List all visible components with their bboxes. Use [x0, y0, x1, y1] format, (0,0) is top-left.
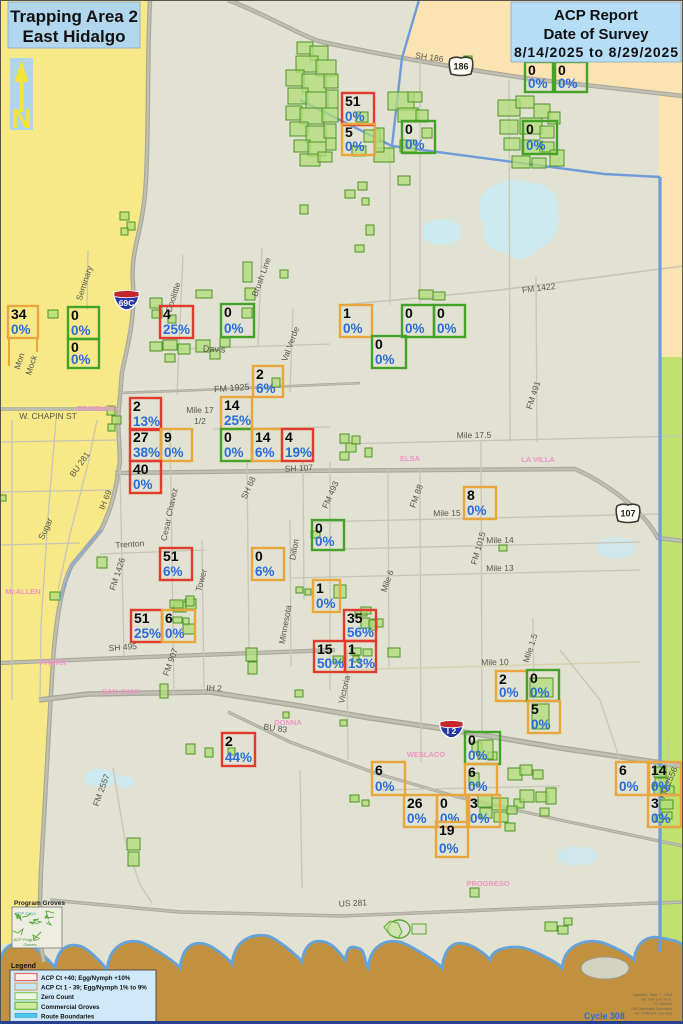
svg-text:0: 0: [224, 304, 232, 320]
svg-text:15: 15: [317, 641, 333, 657]
svg-text:1: 1: [348, 641, 356, 657]
svg-text:6%: 6%: [163, 564, 183, 579]
svg-text:EDINBURG: EDINBURG: [77, 404, 117, 413]
svg-text:6%: 6%: [256, 381, 276, 396]
svg-text:0%: 0%: [439, 841, 459, 856]
svg-text:3: 3: [651, 795, 659, 811]
svg-text:6%: 6%: [255, 564, 275, 579]
svg-text:0%: 0%: [558, 76, 578, 91]
svg-text:0: 0: [375, 336, 383, 352]
svg-text:6: 6: [165, 610, 173, 626]
svg-text:8: 8: [467, 487, 475, 503]
svg-text:0%: 0%: [405, 321, 425, 336]
svg-text:0%: 0%: [499, 685, 519, 700]
svg-text:Mile 13: Mile 13: [486, 563, 514, 573]
svg-text:1: 1: [316, 580, 324, 596]
svg-text:19%: 19%: [285, 445, 312, 460]
svg-text:LA VILLA: LA VILLA: [521, 455, 555, 464]
svg-text:1/2: 1/2: [194, 416, 206, 426]
svg-text:8/14/2025 to 8/29/2025: 8/14/2025 to 8/29/2025: [514, 44, 678, 60]
svg-text:0%: 0%: [343, 321, 363, 336]
svg-text:East Hidalgo: East Hidalgo: [23, 27, 126, 46]
svg-text:0%: 0%: [315, 534, 335, 549]
svg-text:Legend: Legend: [11, 963, 36, 970]
svg-text:0%: 0%: [375, 352, 395, 367]
svg-text:19: 19: [439, 822, 455, 838]
svg-text:0%: 0%: [528, 76, 548, 91]
svg-text:Cycle 308: Cycle 308: [584, 1011, 625, 1021]
svg-text:27: 27: [133, 429, 149, 445]
svg-text:ELSA: ELSA: [400, 454, 421, 463]
svg-text:0%: 0%: [224, 321, 244, 336]
svg-text:2: 2: [256, 366, 264, 382]
svg-text:0%: 0%: [375, 779, 395, 794]
svg-text:0%: 0%: [619, 779, 639, 794]
svg-text:34: 34: [11, 306, 27, 322]
svg-text:0%: 0%: [164, 445, 184, 460]
svg-text:Mile 17.5: Mile 17.5: [457, 430, 492, 441]
svg-text:0%: 0%: [133, 477, 153, 492]
svg-text:ACP Ct +40; Egg/Nymph +10%: ACP Ct +40; Egg/Nymph +10%: [41, 975, 131, 982]
svg-text:0%: 0%: [468, 779, 488, 794]
svg-text:Updated: Sept. 7, 2018: Updated: Sept. 7, 2018: [633, 993, 672, 997]
svg-text:Tel: TXWDAT Lab only: Tel: TXWDAT Lab only: [634, 1011, 672, 1015]
svg-text:0%: 0%: [345, 139, 365, 154]
svg-text:0%: 0%: [407, 811, 427, 826]
svg-text:SAN JUAN: SAN JUAN: [102, 687, 140, 696]
svg-text:Trapping Area 2: Trapping Area 2: [10, 7, 138, 26]
svg-text:0: 0: [71, 307, 79, 323]
svg-text:14: 14: [651, 762, 667, 778]
svg-text:Davis: Davis: [203, 343, 226, 354]
svg-text:107: 107: [620, 509, 635, 519]
svg-text:25%: 25%: [163, 322, 190, 337]
svg-text:14: 14: [255, 429, 271, 445]
svg-text:IH 2: IH 2: [206, 683, 222, 694]
svg-text:0: 0: [224, 429, 232, 445]
svg-text:0%: 0%: [224, 445, 244, 460]
svg-text:Trenton: Trenton: [115, 538, 145, 550]
svg-text:Program Groves: Program Groves: [14, 900, 65, 907]
svg-text:I 2: I 2: [447, 726, 457, 736]
svg-text:Route Boundaries: Route Boundaries: [41, 1013, 95, 1020]
svg-text:0%: 0%: [11, 322, 31, 337]
svg-text:69C: 69C: [119, 298, 135, 308]
svg-text:44%: 44%: [225, 750, 252, 765]
svg-text:6: 6: [619, 762, 627, 778]
svg-text:Mile 10: Mile 10: [481, 657, 509, 667]
svg-text:0: 0: [440, 795, 448, 811]
svg-text:N: N: [11, 103, 31, 134]
svg-text:0%: 0%: [470, 811, 490, 826]
svg-text:PROGRESO: PROGRESO: [466, 879, 510, 888]
svg-text:Date of Survey: Date of Survey: [543, 26, 649, 43]
svg-text:0: 0: [437, 305, 445, 321]
svg-text:WESLACO: WESLACO: [407, 750, 445, 759]
svg-text:0%: 0%: [316, 596, 336, 611]
svg-text:Zero Count: Zero Count: [41, 994, 74, 1001]
svg-text:51: 51: [163, 548, 179, 564]
svg-text:0%: 0%: [437, 321, 457, 336]
svg-text:0: 0: [468, 732, 476, 748]
svg-text:0%: 0%: [405, 137, 425, 152]
svg-text:13%: 13%: [348, 656, 375, 671]
svg-text:0: 0: [530, 670, 538, 686]
svg-text:SH 107: SH 107: [284, 462, 313, 473]
svg-text:0: 0: [405, 121, 413, 137]
svg-text:40: 40: [133, 461, 149, 477]
svg-text:By: GIS and Tech.: By: GIS and Tech.: [641, 998, 672, 1002]
svg-text:TX Weekly: TX Weekly: [654, 1002, 672, 1006]
svg-text:GIS Database Specialist: GIS Database Specialist: [631, 1007, 673, 1011]
svg-text:6: 6: [468, 764, 476, 780]
svg-text:56%: 56%: [347, 625, 374, 640]
svg-text:9: 9: [164, 429, 172, 445]
svg-text:0%: 0%: [71, 352, 91, 367]
svg-text:4: 4: [285, 429, 293, 445]
svg-text:0: 0: [526, 121, 534, 137]
svg-text:W. CHAPIN ST: W. CHAPIN ST: [19, 411, 77, 421]
svg-text:0%: 0%: [345, 109, 365, 124]
svg-text:14: 14: [224, 397, 240, 413]
svg-text:5: 5: [531, 701, 539, 717]
svg-text:25%: 25%: [134, 626, 161, 641]
svg-text:0%: 0%: [467, 503, 487, 518]
svg-text:186: 186: [453, 62, 468, 72]
svg-text:ACP Ct 1 - 39; Egg/Nymph 1% to: ACP Ct 1 - 39; Egg/Nymph 1% to 9%: [41, 985, 147, 992]
svg-text:0%: 0%: [651, 779, 671, 794]
svg-text:US 281: US 281: [338, 897, 367, 908]
svg-text:McALLEN: McALLEN: [5, 587, 40, 596]
svg-text:PHARR: PHARR: [40, 658, 67, 667]
svg-text:51: 51: [345, 93, 361, 109]
svg-text:6%: 6%: [255, 445, 275, 460]
svg-text:Mile 15: Mile 15: [433, 508, 461, 518]
svg-text:Groves: Groves: [24, 942, 37, 947]
svg-text:1: 1: [343, 305, 351, 321]
svg-text:2: 2: [225, 733, 233, 749]
svg-text:0: 0: [405, 305, 413, 321]
svg-text:0%: 0%: [531, 717, 551, 732]
svg-text:13%: 13%: [133, 414, 160, 429]
svg-text:0%: 0%: [526, 138, 546, 153]
svg-text:0%: 0%: [71, 323, 91, 338]
svg-text:0: 0: [255, 548, 263, 564]
svg-text:35: 35: [347, 610, 363, 626]
svg-text:3: 3: [470, 795, 478, 811]
svg-text:25%: 25%: [224, 413, 251, 428]
svg-text:38%: 38%: [133, 445, 160, 460]
svg-text:50%: 50%: [317, 656, 344, 671]
svg-text:51: 51: [134, 610, 150, 626]
svg-text:5: 5: [345, 124, 353, 140]
svg-text:2: 2: [133, 398, 141, 414]
svg-text:0%: 0%: [530, 685, 550, 700]
svg-text:Mile 14: Mile 14: [486, 535, 514, 545]
svg-text:ACP Report: ACP Report: [554, 7, 638, 24]
svg-text:0%: 0%: [651, 811, 671, 826]
svg-text:0%: 0%: [468, 748, 488, 763]
svg-text:26: 26: [407, 795, 423, 811]
svg-text:Commercial Groves: Commercial Groves: [41, 1004, 100, 1011]
svg-text:Mile 17: Mile 17: [186, 405, 214, 415]
svg-text:4: 4: [163, 306, 171, 322]
svg-text:0%: 0%: [165, 626, 185, 641]
svg-text:6: 6: [375, 762, 383, 778]
